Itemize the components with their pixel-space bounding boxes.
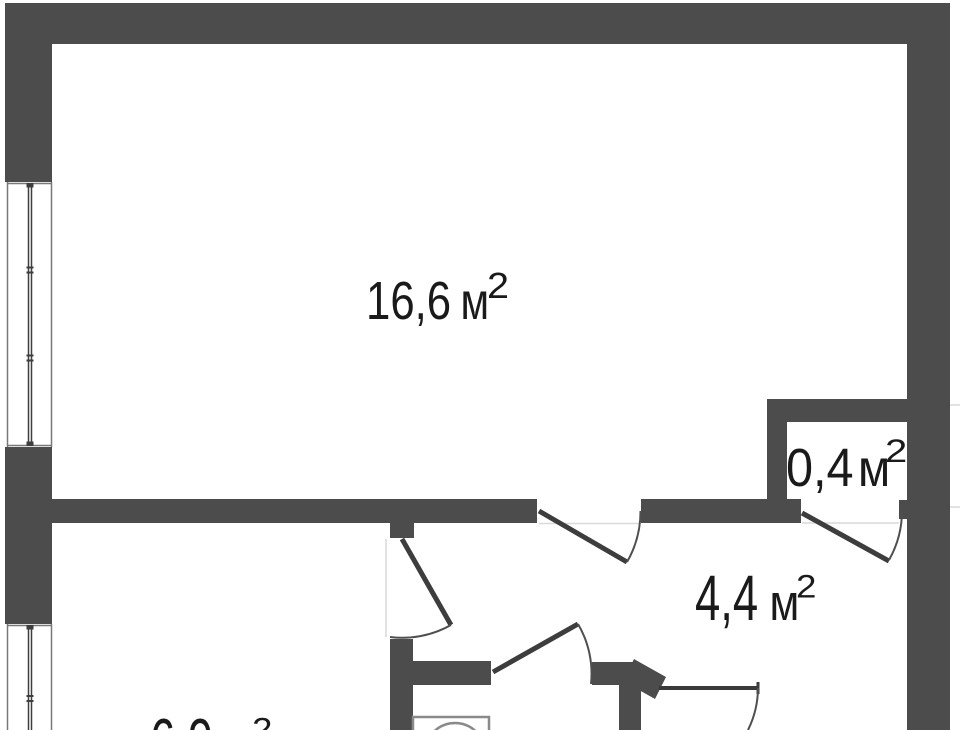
svg-text:м: м (461, 272, 490, 331)
svg-text:2: 2 (252, 713, 272, 730)
svg-text:2: 2 (796, 570, 816, 605)
svg-text:16,6: 16,6 (366, 272, 451, 331)
svg-text:2: 2 (885, 433, 907, 469)
svg-text:2: 2 (487, 267, 509, 307)
svg-text:4,4: 4,4 (695, 562, 758, 633)
svg-text:6,9: 6,9 (150, 706, 213, 730)
svg-text:м: м (770, 575, 800, 632)
svg-text:м: м (224, 715, 252, 730)
svg-text:0,4: 0,4 (786, 437, 854, 498)
